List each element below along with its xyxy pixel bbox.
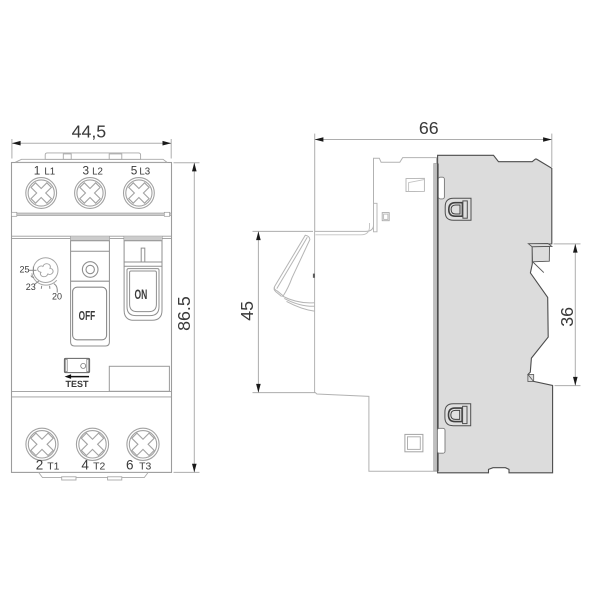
svg-text:44,5: 44,5 bbox=[72, 122, 107, 142]
svg-text:25: 25 bbox=[19, 265, 29, 275]
svg-text:TEST: TEST bbox=[65, 379, 89, 389]
svg-text:T2: T2 bbox=[93, 461, 105, 472]
svg-text:L3: L3 bbox=[139, 167, 150, 178]
svg-text:3: 3 bbox=[83, 164, 90, 178]
svg-text:5: 5 bbox=[131, 164, 138, 178]
svg-text:1: 1 bbox=[34, 164, 41, 178]
svg-text:4: 4 bbox=[81, 457, 89, 472]
svg-text:23: 23 bbox=[26, 282, 36, 292]
svg-text:T1: T1 bbox=[47, 461, 59, 472]
svg-text:86.5: 86.5 bbox=[174, 296, 194, 331]
svg-text:45: 45 bbox=[237, 301, 257, 321]
svg-text:6: 6 bbox=[126, 457, 134, 472]
svg-text:20: 20 bbox=[52, 292, 62, 302]
svg-text:T3: T3 bbox=[139, 461, 151, 472]
svg-text:L2: L2 bbox=[92, 167, 103, 178]
svg-text:OFF: OFF bbox=[79, 310, 96, 324]
svg-text:L1: L1 bbox=[44, 167, 55, 178]
svg-text:36: 36 bbox=[557, 307, 577, 327]
svg-text:2: 2 bbox=[36, 457, 44, 472]
svg-text:ON: ON bbox=[135, 288, 148, 302]
svg-text:66: 66 bbox=[419, 118, 439, 138]
